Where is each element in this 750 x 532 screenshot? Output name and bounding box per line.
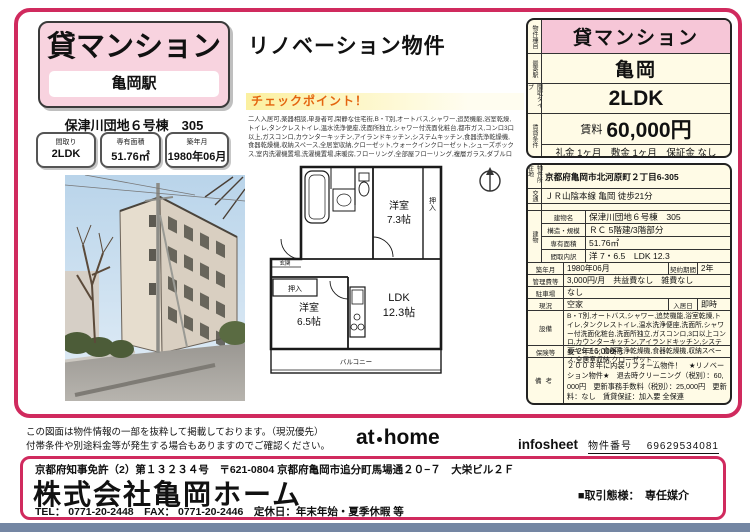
term-label: 契約期間 bbox=[668, 263, 698, 274]
athome-logo-at: at bbox=[356, 426, 375, 450]
summary-type-value: 貸マンション bbox=[542, 20, 730, 53]
stat-built-value: 1980年06月 bbox=[167, 148, 227, 164]
bottom-bar bbox=[0, 523, 750, 532]
term-value: 2年 bbox=[698, 263, 730, 274]
property-type-title: 貸マンション bbox=[40, 23, 228, 71]
detail-table: 物件所在地 京都府亀岡市北河原町２丁目6-305 交通 ＪＲ山陰本線 亀岡 徒歩… bbox=[526, 163, 732, 405]
feature-list-text: 二人入居可,楽器相談,単身者可,閑静な住宅街,B・T別,オートバス,シャワー,追… bbox=[248, 116, 514, 158]
insurance-value: 要 2年16,000円 bbox=[564, 346, 730, 357]
detail-row-building: 建物 建物名 保津川団地６号棟 305 構造・規模 ＲＣ 5階建/3階部分 専有… bbox=[528, 211, 730, 263]
layout-detail-value: 洋 7・6.5 LDK 12.3 bbox=[586, 250, 730, 262]
building-name-row: 建物名 保津川団地６号棟 305 bbox=[542, 211, 730, 224]
notes-label: 備考 bbox=[528, 358, 564, 403]
athome-logo-dot-icon bbox=[377, 437, 382, 442]
structure-label: 構造・規模 bbox=[542, 224, 586, 236]
property-number: 物件番号 69629534081 bbox=[588, 437, 719, 454]
movein-label: 入居日 bbox=[668, 299, 698, 310]
detail-row-status: 現況 空家 入居日 即時 bbox=[528, 299, 730, 311]
stat-area-label: 専有面積 bbox=[102, 137, 159, 147]
stat-layout-value: 2LDK bbox=[38, 148, 94, 160]
layout-detail-row: 間取内訳 洋 7・6.5 LDK 12.3 bbox=[542, 250, 730, 262]
address-label: 物件所在地 bbox=[528, 165, 542, 188]
area-row: 専有面積 51.76㎡ bbox=[542, 237, 730, 250]
summary-row-conditions: 賃貸条件 賃料 60,000円 礼金 1ヶ月 敷金 1ヶ月 保証金 なし bbox=[528, 114, 730, 158]
parking-label: 駐車場 bbox=[528, 287, 564, 298]
detail-row-equipment: 設備 B・T別,オートバス,シャワー,追焚機能,浴室乾燥,トイレ,タンクレストイ… bbox=[528, 311, 730, 346]
floorplan-diagram: 洋室 7.3帖 押入 押入 洋室 6.5帖 LDK 12.3帖 バルコニー 玄関 bbox=[253, 159, 515, 411]
infosheet-page: 貸マンション 亀岡駅 保津川団地６号棟 305 間取り 2LDK 専有面積 51… bbox=[0, 0, 750, 532]
floorplan-ldk-size: 12.3帖 bbox=[383, 306, 415, 319]
athome-logo: at home bbox=[356, 426, 440, 450]
company-box: 京都府知事免許（2）第１３２３４号 〒621-0804 京都府亀岡市追分町馬場通… bbox=[20, 456, 726, 520]
infosheet-line: infosheet 物件番号 69629534081 bbox=[518, 437, 719, 454]
structure-row: 構造・規模 ＲＣ 5階建/3階部分 bbox=[542, 224, 730, 237]
floorplan-closet2-label: 押入 bbox=[288, 284, 302, 293]
floorplan-balcony-label: バルコニー bbox=[340, 358, 372, 366]
station-name-box: 亀岡駅 bbox=[49, 71, 219, 97]
floorplan-room2-name: 洋室 bbox=[299, 301, 319, 314]
stat-layout: 間取り 2LDK bbox=[36, 132, 96, 168]
access-extra-value bbox=[542, 204, 730, 210]
fee-label: 管理費等 bbox=[528, 275, 564, 286]
company-contact-line: TEL： 0771-20-2448 FAX： 0771-20-2446 定休日：… bbox=[35, 504, 404, 519]
summary-row-layout: 間取タイプ 2LDK bbox=[528, 84, 730, 114]
detail-row-address: 物件所在地 京都府亀岡市北河原町２丁目6-305 bbox=[528, 165, 730, 189]
equipment-label: 設備 bbox=[528, 311, 564, 345]
notes-value: ２００８年に内装リフォーム物件！ ★リノベーション物件★ 退去時クリーニング（税… bbox=[564, 358, 730, 403]
floorplan-room1-size: 7.3帖 bbox=[387, 213, 411, 226]
deal-type: ■取引態様： 専任媒介 bbox=[578, 487, 689, 503]
layout-detail-label: 間取内訳 bbox=[542, 250, 586, 262]
built-label: 築年月 bbox=[528, 263, 564, 274]
access-label: 交通 bbox=[528, 189, 542, 203]
rent-label: 賃料 bbox=[580, 121, 602, 137]
structure-value: ＲＣ 5階建/3階部分 bbox=[586, 224, 730, 236]
stat-built: 築年月 1980年06月 bbox=[165, 132, 229, 168]
summary-layout-label: 間取タイプ bbox=[528, 84, 542, 113]
summary-station-label: 最寄駅 bbox=[528, 54, 542, 83]
detail-row-fee: 管理費等 3,000円/月 共益費なし 雑費なし bbox=[528, 275, 730, 287]
stat-area-value: 51.76㎡ bbox=[102, 148, 159, 164]
stat-area: 専有面積 51.76㎡ bbox=[100, 132, 161, 168]
property-type-card: 貸マンション 亀岡駅 bbox=[38, 21, 230, 108]
rent-line: 賃料 60,000円 bbox=[542, 114, 730, 145]
fee-value: 3,000円/月 共益費なし 雑費なし bbox=[564, 275, 730, 286]
area-value: 51.76㎡ bbox=[586, 237, 730, 249]
summary-table: 物件種目 貸マンション 最寄駅 亀岡 間取タイプ 2LDK 賃貸条件 賃料 60… bbox=[526, 18, 732, 158]
summary-row-station: 最寄駅 亀岡 bbox=[528, 54, 730, 84]
built-value: 1980年06月 bbox=[564, 263, 668, 274]
floorplan-entrance-label: 玄関 bbox=[279, 259, 291, 267]
property-main-panel: 貸マンション 亀岡駅 保津川団地６号棟 305 間取り 2LDK 専有面積 51… bbox=[14, 8, 742, 418]
equipment-value: B・T別,オートバス,シャワー,追焚機能,浴室乾燥,トイレ,タンクレストイレ,温… bbox=[564, 311, 730, 345]
stat-layout-label: 間取り bbox=[38, 137, 94, 147]
area-label: 専有面積 bbox=[542, 237, 586, 249]
disclaimer-text: この図面は物件情報の一部を抜粋して掲載しております。（現況優先） 付帯条件や別途… bbox=[26, 426, 330, 455]
renovation-headline: リノベーション物件 bbox=[248, 30, 446, 60]
detail-row-parking: 駐車場 なし bbox=[528, 287, 730, 299]
summary-conditions-label: 賃貸条件 bbox=[528, 114, 542, 158]
floorplan-room1-name: 洋室 bbox=[389, 199, 409, 212]
building-name-label: 建物名 bbox=[542, 211, 586, 223]
detail-row-insurance: 保険等 要 2年16,000円 bbox=[528, 346, 730, 358]
detail-row-notes: 備考 ２００８年に内装リフォーム物件！ ★リノベーション物件★ 退去時クリーニン… bbox=[528, 358, 730, 403]
summary-station-value: 亀岡 bbox=[542, 54, 730, 83]
summary-type-label: 物件種目 bbox=[528, 20, 542, 53]
rent-value: 60,000円 bbox=[606, 114, 691, 144]
compass-north-icon bbox=[480, 167, 500, 191]
parking-value: なし bbox=[564, 287, 730, 298]
deposit-terms: 礼金 1ヶ月 敷金 1ヶ月 保証金 なし bbox=[542, 145, 730, 158]
insurance-label: 保険等 bbox=[528, 346, 564, 357]
stat-built-label: 築年月 bbox=[167, 137, 227, 147]
athome-logo-home: home bbox=[384, 426, 440, 450]
address-value: 京都府亀岡市北河原町２丁目6-305 bbox=[542, 165, 730, 188]
building-photo bbox=[65, 175, 245, 401]
detail-row-access-extra bbox=[528, 204, 730, 211]
floorplan-room2-size: 6.5帖 bbox=[297, 315, 321, 328]
floorplan-ldk-name: LDK bbox=[388, 292, 410, 304]
status-label: 現況 bbox=[528, 299, 564, 310]
movein-value: 即時 bbox=[698, 299, 730, 310]
property-number-value: 69629534081 bbox=[647, 441, 719, 452]
detail-row-access: 交通 ＪＲ山陰本線 亀岡 徒歩21分 bbox=[528, 189, 730, 204]
disclaimer-line1: この図面は物件情報の一部を抜粋して掲載しております。（現況優先） bbox=[26, 426, 330, 440]
building-group-label: 建物 bbox=[528, 211, 542, 262]
summary-row-type: 物件種目 貸マンション bbox=[528, 20, 730, 54]
access-extra-label bbox=[528, 204, 542, 210]
detail-row-built: 築年月 1980年06月 契約期間 2年 bbox=[528, 263, 730, 275]
disclaimer-line2: 付帯条件や別途料金等が発生する場合もありますのでご確認ください。 bbox=[26, 440, 330, 454]
infosheet-label: infosheet bbox=[518, 437, 578, 452]
access-value: ＪＲ山陰本線 亀岡 徒歩21分 bbox=[542, 189, 730, 203]
checkpoint-banner: チェックポイント！ bbox=[246, 93, 524, 110]
floorplan-closet1-label: 押入 bbox=[429, 196, 437, 211]
property-number-label: 物件番号 bbox=[588, 441, 632, 452]
summary-layout-value: 2LDK bbox=[542, 84, 730, 113]
status-value: 空家 bbox=[564, 299, 668, 310]
building-name-value: 保津川団地６号棟 305 bbox=[586, 211, 730, 223]
